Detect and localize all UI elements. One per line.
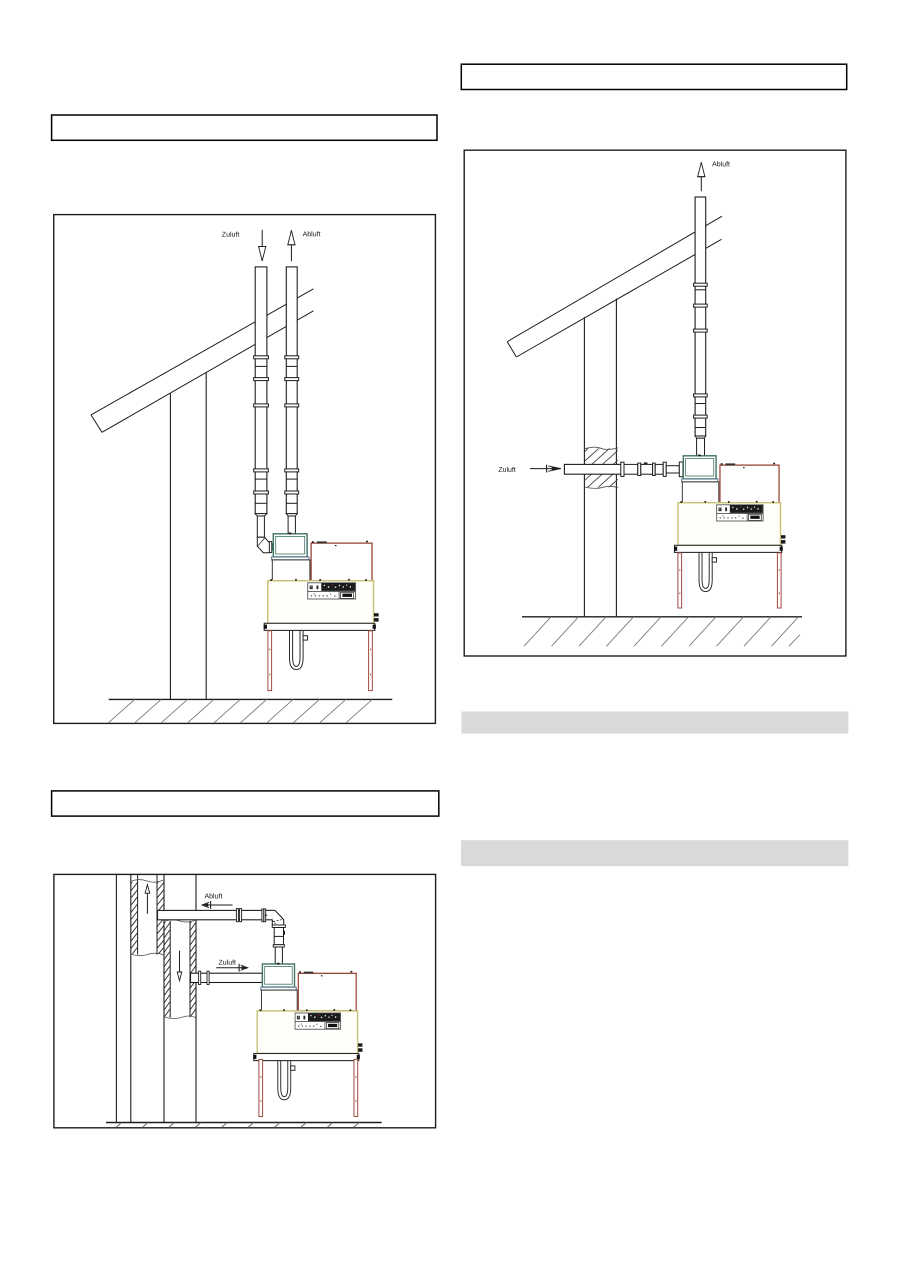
svg-text:Abluft: Abluft bbox=[204, 893, 222, 900]
svg-text:Abluft: Abluft bbox=[303, 231, 321, 238]
svg-text:Abluft: Abluft bbox=[712, 161, 730, 168]
svg-text:Zuluft: Zuluft bbox=[498, 467, 516, 474]
svg-text:Zuluft: Zuluft bbox=[222, 232, 240, 239]
svg-text:Zuluft: Zuluft bbox=[218, 960, 236, 967]
